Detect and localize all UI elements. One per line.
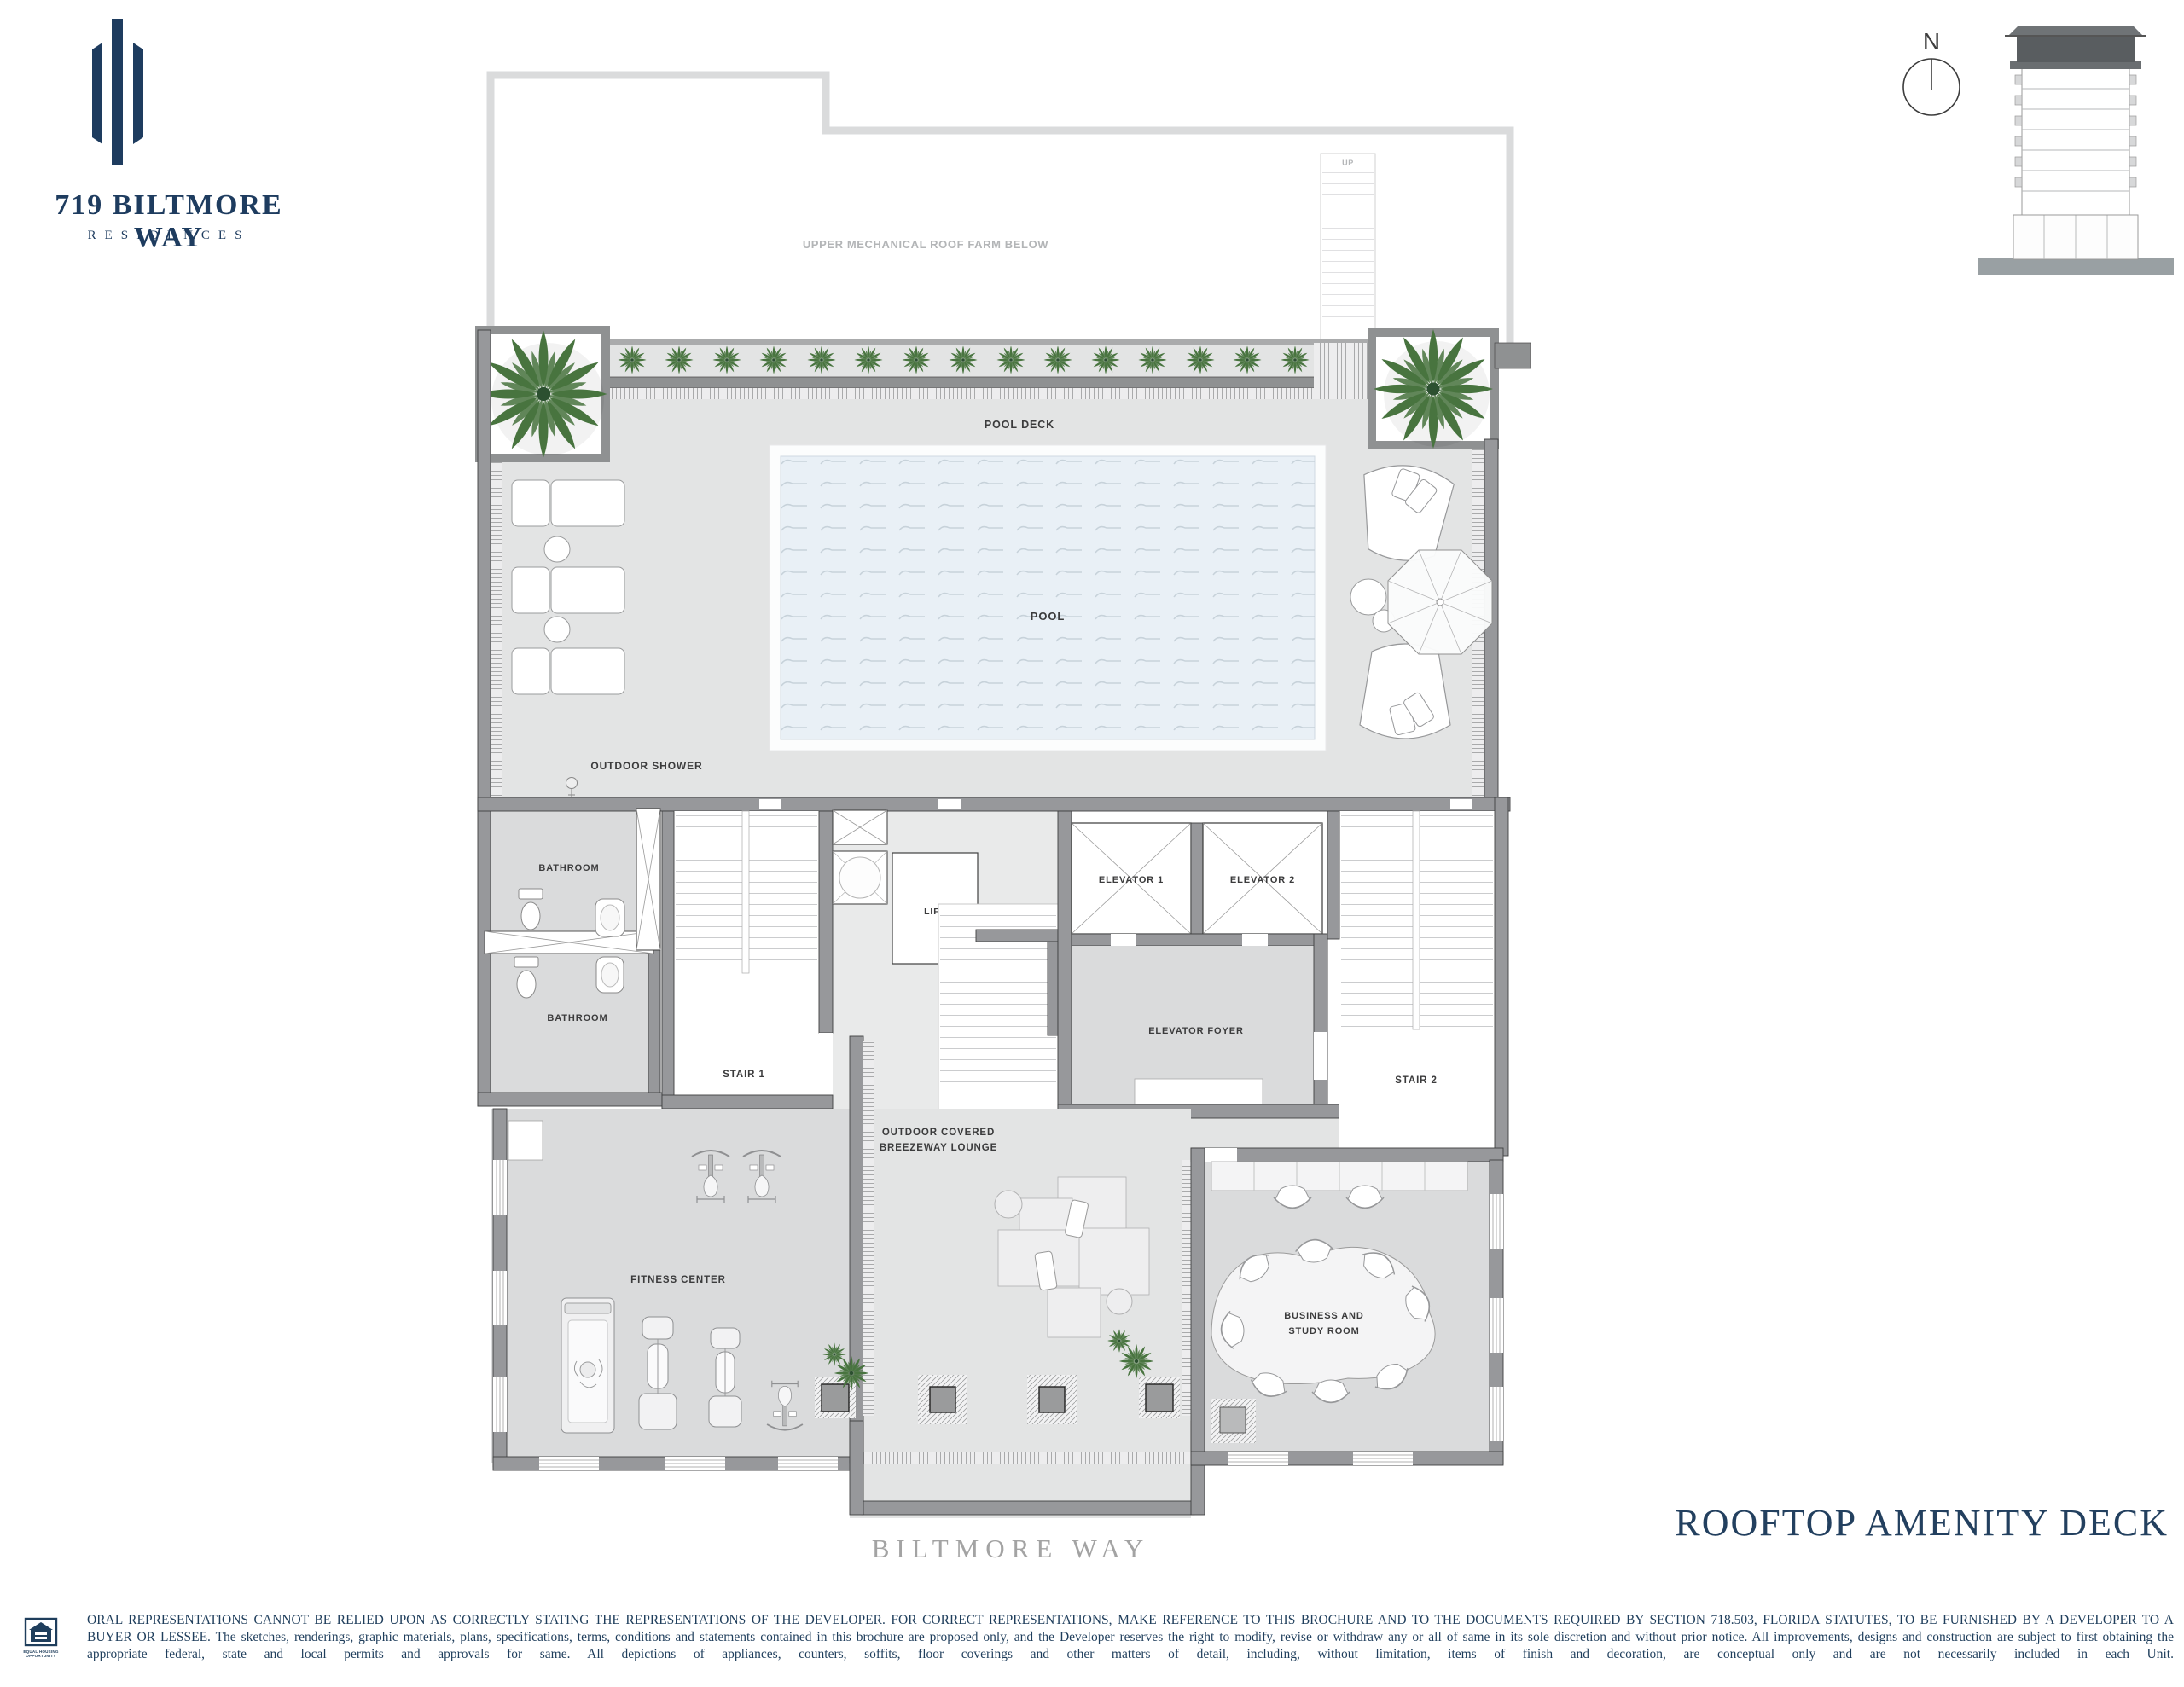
bathroom-2-label: BATHROOM <box>547 1013 607 1023</box>
mechanical-roof: UP UPPER MECHANICAL ROOF FARM BELOW <box>491 75 1510 345</box>
up-label: UP <box>1342 159 1354 167</box>
palm-planter-left <box>479 330 607 458</box>
sink-icon <box>595 899 624 936</box>
disclaimer: ORAL REPRESENTATIONS CANNOT BE RELIED UP… <box>87 1612 2174 1663</box>
brand-logo-icon <box>85 19 150 165</box>
palm-planter-right <box>1372 329 1531 449</box>
brand-subtitle: RESIDENCES <box>26 229 312 243</box>
umbrella-icon <box>1388 550 1492 654</box>
fitness-center: FITNESS CENTER <box>491 1109 860 1470</box>
business-study-room: BUSINESS AND STUDY ROOM <box>1191 1148 1503 1465</box>
roof-stair-shaft <box>1322 171 1374 326</box>
elevator-foyer-label: ELEVATOR FOYER <box>1148 1026 1244 1036</box>
pool: POOL <box>770 445 1326 751</box>
mechanical-roof-label: UPPER MECHANICAL ROOF FARM BELOW <box>803 238 1048 251</box>
street-label: BILTMORE WAY <box>768 1533 1254 1564</box>
pool-label: POOL <box>1031 610 1065 623</box>
treadmill-icon <box>561 1298 614 1433</box>
breezeway-stair <box>938 904 1058 1134</box>
elevator-core: ELEVATOR 1 ELEVATOR 2 ELEVATOR FOYER <box>1058 811 1339 1118</box>
rooftop-amenity-deck-page: 719 BILTMORE WAY RESIDENCES N <box>0 0 2184 1687</box>
north-compass-icon: N <box>1892 20 1978 123</box>
disclaimer-line-1: ORAL REPRESENTATIONS CANNOT BE RELIED UP… <box>87 1612 2174 1629</box>
pool-deck-label: POOL DECK <box>985 419 1054 431</box>
foyer-console <box>1135 1079 1263 1104</box>
equal-housing-caption: EQUAL HOUSINGOPPORTUNITY <box>20 1649 61 1658</box>
fitness-center-label: FITNESS CENTER <box>630 1275 726 1285</box>
stair-2-label: STAIR 2 <box>1395 1075 1438 1086</box>
compass-label: N <box>1923 28 1940 55</box>
elevator-2-label: ELEVATOR 2 <box>1230 875 1295 885</box>
business-room-label-1: BUSINESS AND <box>1284 1311 1364 1321</box>
equal-housing-logo-icon <box>24 1617 58 1648</box>
brand-title: 719 BILTMORE WAY <box>26 189 312 254</box>
outdoor-shower-label: OUTDOOR SHOWER <box>590 760 702 772</box>
chaise-lounges <box>512 480 624 694</box>
business-room-label-2: STUDY ROOM <box>1288 1326 1359 1336</box>
page-title: ROOFTOP AMENITY DECK <box>1401 1501 2169 1545</box>
elevator-1-label: ELEVATOR 1 <box>1099 875 1164 885</box>
west-wall <box>478 330 491 1106</box>
shower-head-icon <box>566 778 578 789</box>
breezeway-label-2: BREEZEWAY LOUNGE <box>880 1143 997 1153</box>
stair-2: STAIR 2 <box>1327 797 1508 1156</box>
disclaimer-line-2: BUYER OR LESSEE. The sketches, rendering… <box>87 1629 2174 1646</box>
disclaimer-line-3: appropriate federal, state and local per… <box>87 1646 2174 1663</box>
stair-1: STAIR 1 <box>662 811 833 1109</box>
building-elevation-key <box>1978 19 2174 279</box>
stair-1-label: STAIR 1 <box>723 1070 765 1080</box>
rooftop-level-highlight <box>2010 61 2141 69</box>
sink-icon <box>596 957 624 993</box>
service-shaft <box>636 809 660 950</box>
breezeway-label-1: OUTDOOR COVERED <box>882 1128 995 1138</box>
bathroom-1-label: BATHROOM <box>538 863 599 873</box>
floor-plan: UP UPPER MECHANICAL ROOF FARM BELOW <box>461 51 1570 1552</box>
